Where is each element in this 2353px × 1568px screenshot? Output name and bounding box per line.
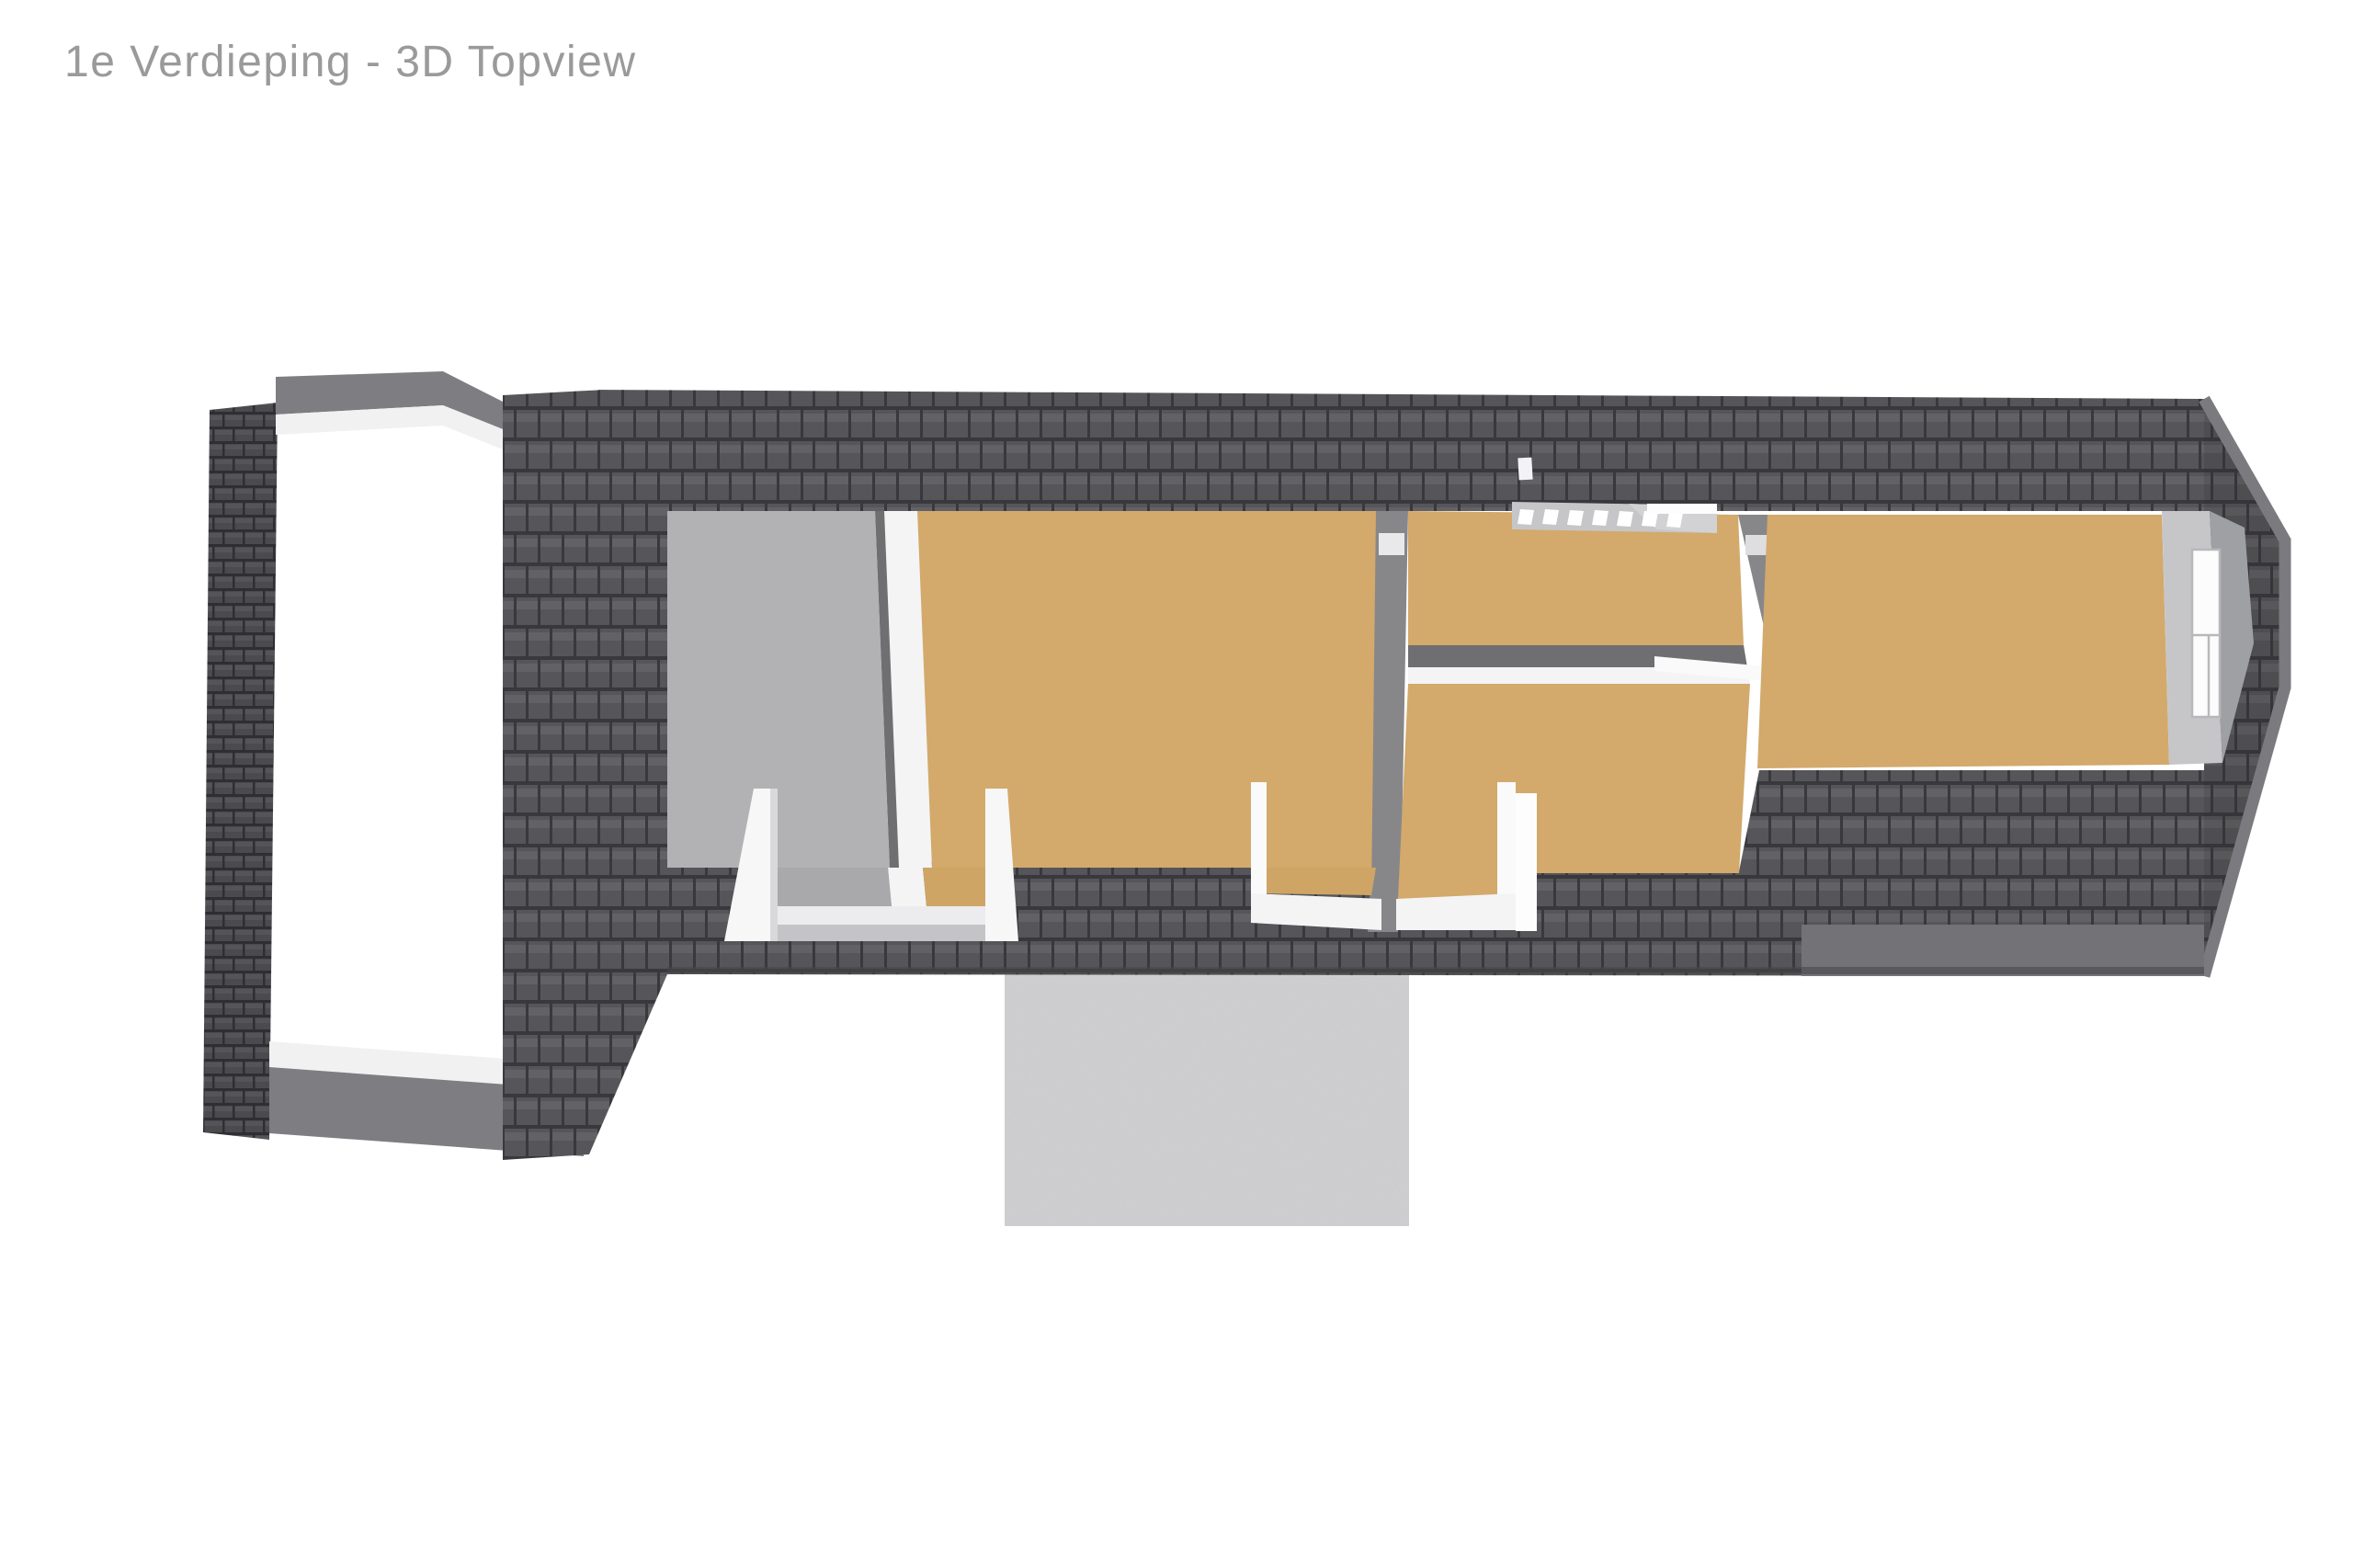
dormer1-interior-wall xyxy=(888,868,926,906)
floorplan-canvas: 1e Verdieping - 3D Topview xyxy=(0,0,2353,1568)
dormer1-interior-tan xyxy=(923,868,985,906)
main-roof-eave-line xyxy=(667,967,2204,974)
room-gray-floor xyxy=(667,511,890,868)
stair-tread xyxy=(1592,510,1608,526)
dormer1-interior-gray xyxy=(778,868,892,906)
staircase xyxy=(1512,502,1717,533)
stair-tread xyxy=(1666,512,1683,528)
stair-tread xyxy=(1567,510,1584,526)
dormer1-sill-front xyxy=(778,925,985,941)
room-tan-right-floor xyxy=(1757,515,2169,768)
main-roof-top-band xyxy=(599,390,2204,511)
concrete-terrace xyxy=(1005,961,1409,1226)
annex-right-roof-strip xyxy=(503,390,667,1160)
gable-window xyxy=(2192,550,2220,717)
room-middle-bottom-floor xyxy=(1398,684,1750,899)
stair-top-sill xyxy=(1647,504,1717,514)
left-annex-roof xyxy=(203,371,667,1160)
dormer2-right-jamb xyxy=(1516,793,1537,931)
wall-stairwell-door-opening xyxy=(1745,535,1769,555)
roof-vent xyxy=(1518,458,1532,481)
stair-tread xyxy=(1542,509,1559,525)
floorplan-rendering xyxy=(0,0,2353,1568)
dormer2-right-sill xyxy=(1396,893,1516,930)
dormer1-left-cheek-face xyxy=(770,789,778,941)
window-bay-tan-patch xyxy=(1251,868,1376,895)
wall-divider-2-notch xyxy=(1379,533,1404,555)
annex-left-roof-strip xyxy=(203,403,278,1140)
stair-tread xyxy=(1617,511,1633,527)
stair-tread xyxy=(1518,509,1534,525)
